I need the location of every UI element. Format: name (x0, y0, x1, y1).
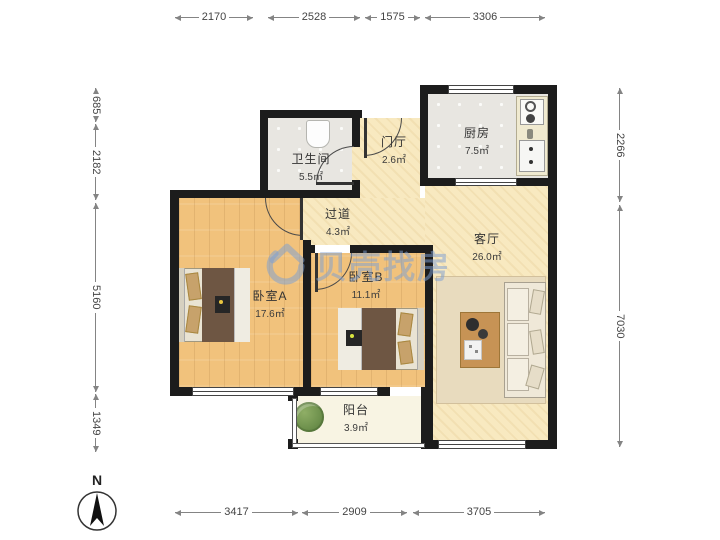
dimension-bottom-3: 3705 (413, 507, 545, 518)
dimension-left-1: 685 (89, 88, 102, 122)
faucet-icon (527, 129, 533, 139)
room-label-foyer: 门厅 2.6㎡ (381, 133, 407, 166)
wall (352, 110, 360, 147)
balcony-glass-wall (292, 443, 425, 448)
dimension-right-2: 7030 (613, 205, 626, 447)
dimension-top-4: 3306 (425, 12, 545, 23)
window-kitchen (448, 85, 514, 94)
book-dot-icon (475, 350, 478, 353)
room-label-balcony: 阳台 3.9㎡ (343, 401, 369, 434)
room-label-living-room: 客厅 26.0㎡ (472, 230, 501, 263)
bed-b-headboard (417, 308, 424, 370)
room-label-kitchen: 厨房 7.5㎡ (464, 124, 490, 157)
bed-a-headboard (178, 268, 185, 342)
table-decor-icon (478, 329, 488, 339)
plant-icon (294, 402, 324, 432)
dimension-right-1: 2266 (613, 88, 626, 202)
bed-tray (346, 330, 362, 346)
wall (350, 245, 433, 253)
wall (170, 190, 179, 396)
wall (548, 85, 557, 449)
room-label-hallway: 过道 4.3㎡ (325, 205, 351, 238)
bed-b-blanket (362, 308, 396, 370)
stove (519, 140, 545, 172)
window-bedroom-b (320, 387, 378, 396)
dimension-left-4: 1349 (89, 394, 102, 452)
tray-dot-icon (350, 334, 354, 338)
dimension-top-1: 2170 (175, 12, 253, 23)
dimension-left-3: 5160 (89, 203, 102, 392)
bedroom-b-door-leaf (315, 253, 318, 292)
sink-drain-icon (526, 114, 535, 123)
wall (378, 387, 390, 396)
wall (420, 85, 428, 186)
dimension-top-3: 1575 (365, 12, 420, 23)
bed-a-duvet (234, 268, 250, 342)
sink-bowl-icon (525, 101, 536, 112)
dimension-left-2: 2182 (89, 124, 102, 200)
wall (170, 190, 360, 198)
wall (425, 245, 433, 387)
window-bedroom-a (192, 387, 294, 396)
sofa-cushion (507, 288, 529, 321)
dimension-top-2: 2528 (268, 12, 360, 23)
table-decor-icon (466, 318, 479, 331)
burner-icon (529, 147, 533, 151)
sofa-cushion (507, 323, 529, 356)
wall (303, 245, 315, 253)
kitchen-sliding-door (455, 178, 517, 186)
wall (311, 387, 320, 396)
dimension-bottom-2: 2909 (302, 507, 407, 518)
toilet (306, 120, 330, 148)
entry-door-leaf (364, 118, 367, 158)
balcony-glass-wall (292, 398, 297, 444)
north-arrow-icon (75, 489, 119, 533)
dimension-bottom-1: 3417 (175, 507, 298, 518)
wall (303, 240, 311, 396)
book-dot-icon (469, 345, 472, 348)
burner-icon (529, 160, 533, 164)
window-living-room (438, 440, 526, 449)
hallway-floor (303, 198, 433, 245)
table-book (464, 340, 482, 360)
room-label-bedroom-a: 卧室A 17.6㎡ (252, 287, 287, 320)
bedroom-a-door-leaf (300, 198, 303, 240)
floor-plan-canvas: 卫生间 5.5㎡ 门厅 2.6㎡ 厨房 7.5㎡ 过道 4.3㎡ 客厅 26.0… (0, 0, 720, 540)
room-label-bathroom: 卫生间 5.5㎡ (291, 150, 330, 183)
room-label-bedroom-b: 卧室B 11.1㎡ (348, 268, 383, 301)
tray-dot-icon (219, 300, 223, 304)
compass-north-label: N (74, 472, 120, 488)
wall (260, 110, 362, 118)
wall (260, 110, 268, 198)
bed-tray (215, 296, 230, 313)
compass: N (74, 472, 120, 538)
